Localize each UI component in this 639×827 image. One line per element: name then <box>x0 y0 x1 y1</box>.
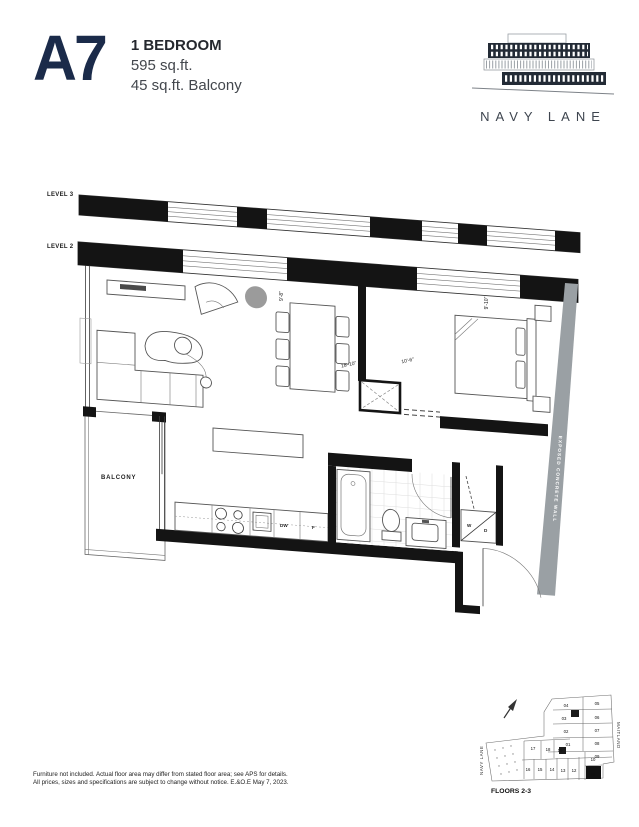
keyplan-amenity-dots <box>494 745 517 774</box>
unit-16: 16 <box>526 767 531 772</box>
bathroom <box>328 453 460 552</box>
unit-05: 05 <box>595 701 600 706</box>
unit-09: 09 <box>595 754 600 759</box>
floor-plan: LEVEL 3 LEVEL 2 BALCONY 9'-8" 18'-10" 10… <box>0 0 639 827</box>
unit-14: 14 <box>550 767 555 772</box>
unit-11: 11 <box>591 772 596 777</box>
fridge-label: F <box>312 525 315 530</box>
street-left-label: NAVY LANE <box>479 746 484 775</box>
key-plan: 04 05 03 06 02 07 01 08 09 17 18 19 16 1… <box>479 695 621 795</box>
dim-bedroom-width: 9'-10" <box>484 296 490 309</box>
unit-12: 12 <box>572 768 577 773</box>
entry-wall <box>455 551 463 612</box>
unit-02: 02 <box>564 729 569 734</box>
unit-04: 04 <box>564 703 569 708</box>
dim-bedroom-length: 10'-6" <box>401 357 415 366</box>
unit-06: 06 <box>595 715 600 720</box>
nightstand <box>533 396 550 412</box>
north-arrow-icon <box>504 699 517 718</box>
disclaimer-line1: Furniture not included. Actual floor are… <box>33 771 289 779</box>
unit-15: 15 <box>538 767 543 772</box>
unit-07: 07 <box>595 728 600 733</box>
level3-wall-band <box>79 195 580 253</box>
entry-door <box>483 548 541 610</box>
unit-17: 17 <box>531 746 536 751</box>
level2-label: LEVEL 2 <box>47 244 74 250</box>
dishwasher-label: DW <box>280 523 288 528</box>
unit-08: 08 <box>595 741 600 746</box>
unit-10: 10 <box>591 757 596 762</box>
disclaimer-line2: All prices, sizes and specifications are… <box>33 779 289 787</box>
unit-03: 03 <box>562 716 567 721</box>
disclaimer: Furniture not included. Actual floor are… <box>33 771 289 787</box>
vanity-sink <box>406 518 446 549</box>
left-wall <box>80 265 91 411</box>
laundry-closet <box>461 463 503 546</box>
plan-geometry <box>78 195 580 622</box>
kitchen-island <box>213 428 303 458</box>
nightstand <box>535 305 551 321</box>
floorplan-sheet: A7 1 BEDROOM 595 sq.ft. 45 sq.ft. Balcon… <box>0 0 639 827</box>
entry-wall-stub <box>455 604 480 614</box>
balcony-label: BALCONY <box>101 475 136 481</box>
unit-19: 19 <box>558 748 563 753</box>
dim-living-width: 9'-8" <box>279 291 285 301</box>
street-right-label: MAITLAND <box>616 722 621 749</box>
level3-label: LEVEL 3 <box>47 192 74 198</box>
keyplan-caption: FLOORS 2-3 <box>491 788 531 795</box>
washer-label: W <box>467 523 472 528</box>
exposed-concrete-wall <box>537 281 578 598</box>
unit-18: 18 <box>546 747 551 752</box>
unit-01: 01 <box>566 742 571 747</box>
balcony <box>83 406 166 560</box>
unit-13: 13 <box>561 768 566 773</box>
living-room <box>97 272 349 418</box>
side-table <box>245 285 267 309</box>
